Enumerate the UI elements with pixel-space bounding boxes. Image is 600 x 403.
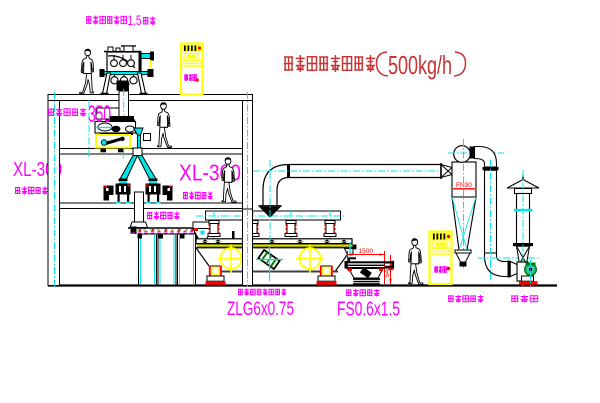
svg-text:350: 350 xyxy=(88,101,111,128)
svg-text:FN30: FN30 xyxy=(456,182,472,189)
svg-text:1.5: 1.5 xyxy=(128,13,142,28)
svg-text:1500: 1500 xyxy=(359,248,374,255)
svg-text:ZLG6x0.75: ZLG6x0.75 xyxy=(227,299,294,320)
svg-text:FS0.6x1.5: FS0.6x1.5 xyxy=(337,299,400,321)
svg-text:500kg/h: 500kg/h xyxy=(388,50,452,80)
